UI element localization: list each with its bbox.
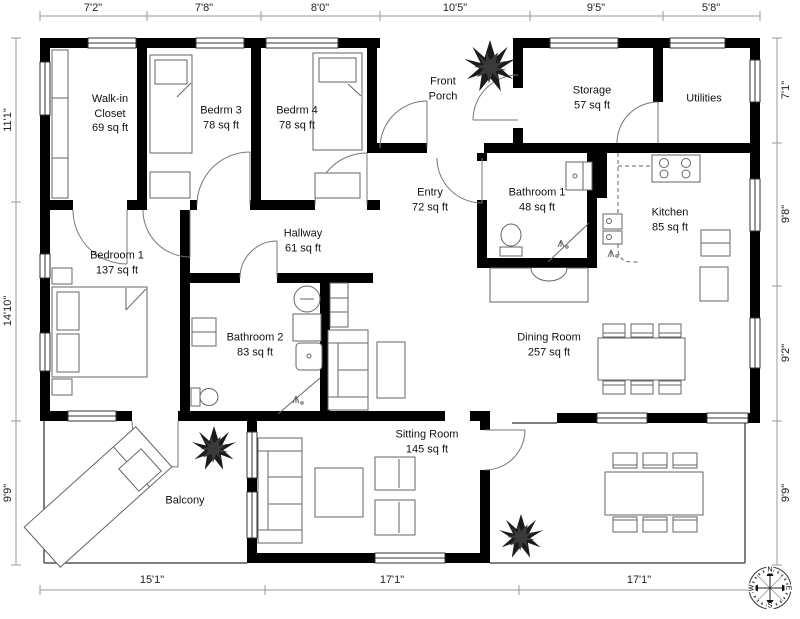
- room-label-bathroom2: Bathroom 283 sq ft: [210, 330, 300, 359]
- room-label-walk-in-closet: Walk-in Closet69 sq ft: [78, 92, 142, 136]
- dim-left-2: 14'10": [2, 296, 14, 326]
- dim-right-3: 9'2": [780, 344, 792, 362]
- room-label-dining-room: Dining Room257 sq ft: [504, 330, 594, 359]
- room-label-storage: Storage57 sq ft: [547, 83, 637, 112]
- plant-icon: [192, 426, 236, 470]
- sideboard-icon: [700, 267, 728, 301]
- room-label-bathroom1: Bathroom 148 sq ft: [492, 185, 582, 214]
- shower-icon: [548, 223, 589, 262]
- room-label-front-porch: Front Porch: [418, 74, 468, 103]
- room-label-entry: Entry72 sq ft: [385, 185, 475, 214]
- double-bed-icon: [52, 268, 147, 395]
- room-label-bedroom1: Bedroom 1137 sq ft: [72, 248, 162, 277]
- sofa-icon: [258, 438, 302, 543]
- dim-top-5: 9'5": [587, 2, 605, 14]
- dim-right-1: 7'1": [780, 81, 792, 99]
- room-label-hallway: Hallway61 sq ft: [258, 226, 348, 255]
- dim-top-2: 7'8": [195, 2, 213, 14]
- dim-top-3: 8'0": [311, 2, 329, 14]
- compass-west-label: W: [749, 584, 756, 593]
- dim-left-1: 11'1": [2, 108, 14, 132]
- closet-shelves-icon: [52, 50, 68, 198]
- patio-table-icon: [605, 453, 703, 532]
- toilet-icon: [501, 224, 521, 246]
- compass-north-label: N: [766, 567, 773, 574]
- loveseat-icon: [328, 330, 368, 410]
- dim-bottom-3: 17'1": [627, 574, 651, 586]
- room-label-kitchen: Kitchen85 sq ft: [625, 205, 715, 234]
- dim-right-2: 9'8": [780, 205, 792, 223]
- shower-icon: [278, 378, 320, 414]
- dim-bottom-2: 17'1": [380, 574, 404, 586]
- compass-south-label: S: [767, 603, 774, 610]
- dim-top-6: 5'8": [702, 2, 720, 14]
- room-label-sitting-room: Sitting Room145 sq ft: [382, 427, 472, 456]
- dresser-icon: [150, 172, 190, 198]
- dim-right-4: 9'9": [780, 484, 792, 502]
- room-label-balcony: Balcony: [140, 494, 230, 509]
- stove-icon: [652, 155, 700, 182]
- dim-left-3: 9'9": [2, 484, 14, 502]
- toilet-icon: [191, 388, 200, 406]
- plant-icon: [464, 40, 515, 91]
- armchair-icon: [375, 457, 415, 490]
- compass-east-label: E: [785, 585, 792, 592]
- coffee-table-icon: [315, 468, 363, 517]
- dim-top-4: 10'5": [443, 2, 467, 14]
- plant-icon: [499, 514, 543, 558]
- room-label-utilities: Utilities: [659, 92, 749, 107]
- desk-icon: [490, 268, 588, 302]
- armchair-icon: [375, 500, 415, 535]
- dim-top-1: 7'2": [84, 2, 102, 14]
- side-table-icon: [377, 342, 405, 398]
- nook-furniture: [328, 283, 405, 410]
- kitchen-sink-icon: [603, 214, 622, 229]
- room-label-bedrm4: Bedrm 478 sq ft: [252, 103, 342, 132]
- dresser-icon: [315, 173, 360, 198]
- bookshelf-icon: [330, 283, 348, 327]
- bed-icon: [313, 53, 362, 150]
- floor-plan: Walk-in Closet69 sq ft Bedrm 378 sq ft B…: [0, 0, 800, 619]
- dining-table-icon: [598, 324, 685, 394]
- dim-bottom-1: 15'1": [140, 574, 164, 586]
